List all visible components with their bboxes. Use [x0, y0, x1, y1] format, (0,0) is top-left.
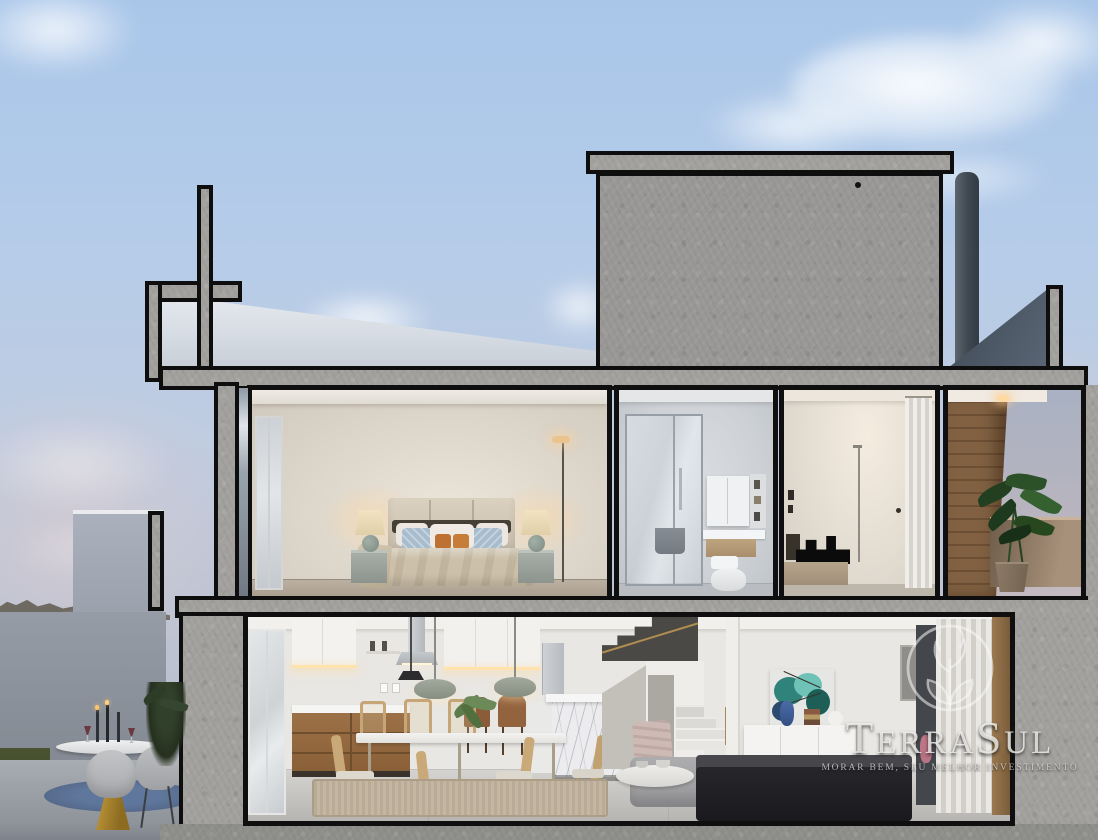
- coffee-table-bowl: [636, 761, 648, 768]
- upper-cabinets-right: [444, 619, 540, 667]
- shower-rail: [858, 448, 860, 562]
- curtain: [905, 396, 932, 588]
- bathroom-ceiling: [619, 390, 773, 402]
- decor-vase-blue: [780, 701, 794, 726]
- decor-books: [804, 709, 820, 725]
- pendant-cord: [410, 617, 412, 671]
- curtain: [936, 619, 992, 813]
- vanity-drawer: [706, 539, 756, 557]
- wall-sliver-right: [1086, 385, 1098, 602]
- balcony-glass-door: [255, 416, 283, 590]
- pendant-cord: [514, 617, 516, 679]
- decor-ball-vase: [828, 711, 843, 726]
- shower-head: [853, 445, 862, 448]
- shower-door-frame: [673, 416, 675, 584]
- hood-light: [402, 663, 432, 665]
- gf-ceiling: [248, 617, 1010, 629]
- under-cabinet-light: [444, 667, 540, 670]
- bedroom: [247, 385, 612, 602]
- floor-lamp-pole: [562, 442, 564, 582]
- table-lamp-shade: [521, 510, 551, 535]
- open-shelf: [750, 474, 766, 528]
- cabinet-seam: [507, 619, 508, 667]
- right-wall-block: [1013, 600, 1098, 840]
- black-pendant: [398, 671, 424, 680]
- wood-door-edge: [992, 617, 1010, 815]
- stair-step: [676, 705, 704, 717]
- bar-stool: [498, 695, 526, 727]
- left-pier: [179, 612, 248, 828]
- shower-handle: [679, 468, 682, 510]
- table-lamp-base: [362, 535, 379, 552]
- wall-dispenser: [788, 490, 794, 500]
- kitchen-counter: [292, 705, 410, 713]
- candle: [106, 705, 109, 742]
- bathroom-shower: [614, 385, 778, 602]
- foundation-strip: [160, 824, 1098, 840]
- candle: [96, 710, 99, 742]
- upper-concrete-box: [596, 172, 943, 390]
- upper-cabinets-left: [292, 619, 356, 665]
- hook-item: [382, 641, 387, 651]
- balcony-glass-sliver: [239, 388, 248, 598]
- stair-step: [676, 717, 716, 728]
- plant-pot: [993, 562, 1031, 592]
- sliding-glass-door: [248, 629, 286, 815]
- wall-outlet: [392, 683, 400, 693]
- window-sliver-dark: [916, 625, 936, 805]
- wall-dispenser: [788, 505, 793, 513]
- terrace: [943, 385, 1086, 602]
- wall-stub-left: [148, 511, 164, 611]
- candle-flame: [95, 705, 99, 710]
- ground-floor: [243, 612, 1015, 826]
- candle: [117, 712, 120, 742]
- dining-rug: [312, 779, 608, 817]
- candle-flame: [105, 700, 109, 705]
- wall-outlet: [380, 683, 388, 693]
- shower-glass: [625, 414, 703, 586]
- patio-chair-shell: [86, 750, 136, 798]
- shelf-item: [754, 496, 761, 504]
- bedroom-ceiling: [252, 390, 607, 404]
- pillow-orange: [435, 534, 451, 549]
- wall-hook-rail: [366, 651, 400, 654]
- table-lamp-shade: [355, 510, 385, 535]
- parapet-cap-right: [1046, 285, 1063, 374]
- door-mullion: [268, 418, 270, 588]
- vanity-cut-silhouette: [796, 536, 850, 564]
- upper-box-cap: [586, 151, 954, 174]
- pillow-orange: [453, 534, 469, 549]
- pendant-lamp: [494, 677, 536, 697]
- architectural-section-render: TERRASUL MORAR BEM, SEU MELHOR INVESTIME…: [0, 0, 1098, 840]
- fridge: [542, 643, 564, 695]
- bathroom-vanity-room: [779, 385, 940, 602]
- vanity-counter: [703, 530, 765, 539]
- pendant-lamp: [414, 679, 456, 699]
- stair-step: [676, 728, 728, 739]
- towel: [655, 528, 685, 554]
- pendant-cord: [434, 617, 436, 681]
- cabinet-seam: [322, 619, 323, 665]
- floor-lamp-head: [552, 436, 570, 443]
- hook-item: [370, 641, 375, 651]
- door-mullion: [266, 631, 268, 813]
- shower-knob: [896, 508, 901, 513]
- shelf-item: [754, 480, 760, 489]
- terrace-downlight: [997, 395, 1009, 402]
- toilet-bowl: [711, 568, 746, 591]
- upper-box-vent-dot: [855, 182, 861, 188]
- nightstand: [351, 550, 387, 583]
- under-cabinet-light: [292, 665, 356, 668]
- cabinet-seam: [475, 619, 476, 667]
- wall-cabinet: [707, 476, 749, 526]
- flower-accent-pink: [920, 735, 932, 763]
- coffee-table-bowl: [656, 760, 670, 768]
- cloud: [700, 90, 890, 160]
- cabinet-door-seam: [727, 478, 728, 524]
- shelf-item: [754, 512, 760, 521]
- vanity-counter-front: [784, 562, 848, 585]
- sofa-dark-base: [696, 767, 912, 821]
- tall-wall-left: [197, 185, 213, 382]
- coffee-table: [616, 765, 694, 787]
- table-lamp-base: [528, 535, 545, 552]
- wall-column: [726, 617, 740, 767]
- balcony-column: [214, 382, 239, 604]
- chair-seat: [572, 769, 604, 778]
- nightstand: [518, 550, 554, 583]
